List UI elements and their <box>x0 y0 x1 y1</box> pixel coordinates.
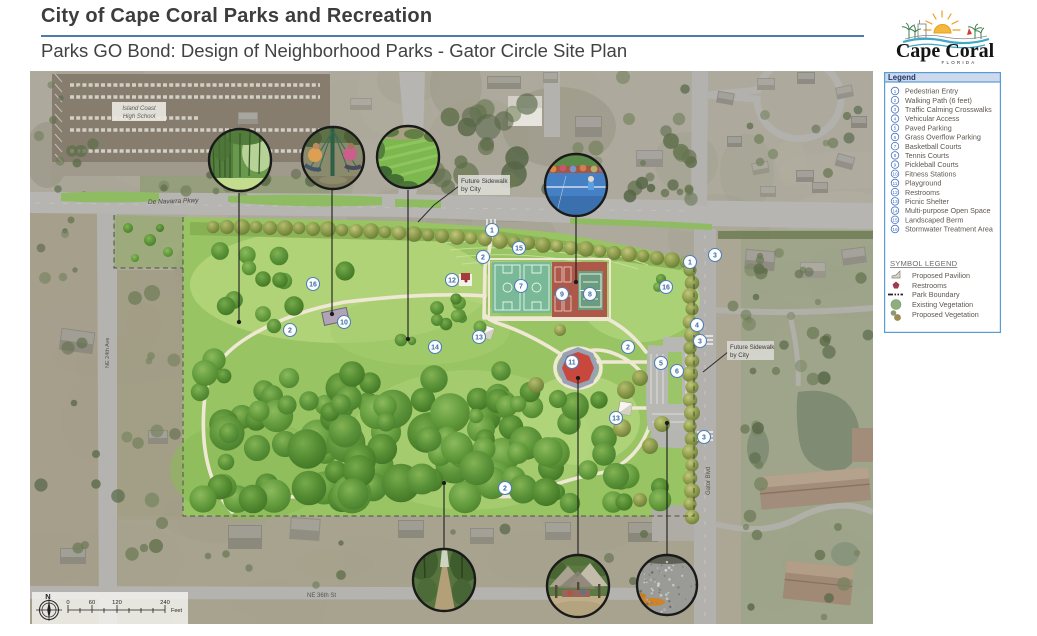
svg-text:14: 14 <box>892 208 898 214</box>
svg-text:9: 9 <box>560 291 564 298</box>
svg-text:Restrooms: Restrooms <box>905 188 940 197</box>
svg-text:Playground: Playground <box>905 179 941 188</box>
svg-text:7: 7 <box>894 144 897 150</box>
svg-text:Paved Parking: Paved Parking <box>905 123 952 132</box>
svg-text:Gator Blvd: Gator Blvd <box>706 467 712 495</box>
svg-text:16: 16 <box>662 284 670 291</box>
svg-text:SYMBOL LEGEND: SYMBOL LEGEND <box>890 259 958 268</box>
svg-text:3: 3 <box>894 107 897 113</box>
svg-text:3: 3 <box>713 252 717 259</box>
svg-text:13: 13 <box>475 334 483 341</box>
svg-text:Tennis Courts: Tennis Courts <box>905 151 949 160</box>
svg-text:5: 5 <box>894 126 897 132</box>
svg-text:8: 8 <box>588 291 592 298</box>
svg-text:1: 1 <box>490 227 494 234</box>
svg-text:Legend: Legend <box>888 73 916 82</box>
svg-text:16: 16 <box>892 227 898 233</box>
svg-text:15: 15 <box>892 218 898 224</box>
svg-text:14: 14 <box>431 344 439 351</box>
svg-text:2: 2 <box>894 98 897 104</box>
svg-text:12: 12 <box>448 277 456 284</box>
svg-text:Landscaped Berm: Landscaped Berm <box>905 215 963 224</box>
svg-text:2: 2 <box>481 254 485 261</box>
svg-text:NE 36th St: NE 36th St <box>307 593 336 599</box>
svg-text:Restrooms: Restrooms <box>912 281 947 290</box>
svg-text:Vehicular Access: Vehicular Access <box>905 114 960 123</box>
svg-text:10: 10 <box>340 319 348 326</box>
svg-text:Future Sidewalk: Future Sidewalk <box>461 178 508 185</box>
svg-text:3: 3 <box>702 434 706 441</box>
svg-text:Basketball Courts: Basketball Courts <box>905 142 962 151</box>
svg-text:Pickleball Courts: Pickleball Courts <box>905 160 959 169</box>
svg-text:10: 10 <box>892 172 898 178</box>
svg-text:Grass Overflow Parking: Grass Overflow Parking <box>905 133 981 142</box>
svg-text:Picnic Shelter: Picnic Shelter <box>905 197 950 206</box>
svg-text:Feet: Feet <box>171 608 182 614</box>
svg-text:Multi-purpose Open Space: Multi-purpose Open Space <box>905 206 991 215</box>
svg-text:N: N <box>45 592 50 601</box>
svg-text:by City: by City <box>461 186 482 193</box>
svg-text:12: 12 <box>892 190 898 196</box>
svg-text:15: 15 <box>515 245 523 252</box>
svg-text:2: 2 <box>503 485 507 492</box>
svg-text:13: 13 <box>612 415 620 422</box>
svg-text:5: 5 <box>659 360 663 367</box>
svg-text:60: 60 <box>89 600 95 606</box>
svg-text:11: 11 <box>568 359 576 366</box>
svg-text:2: 2 <box>288 327 292 334</box>
svg-text:Cape Coral: Cape Coral <box>896 40 995 62</box>
svg-text:FLORIDA: FLORIDA <box>942 60 977 65</box>
svg-text:Island Coast: Island Coast <box>122 106 156 112</box>
svg-text:3: 3 <box>698 338 702 345</box>
svg-text:Pedestrian Entry: Pedestrian Entry <box>905 87 959 96</box>
svg-text:Fitness Stations: Fitness Stations <box>905 169 957 178</box>
svg-text:1: 1 <box>688 259 692 266</box>
svg-text:6: 6 <box>675 368 679 375</box>
svg-text:Walking Path (6 feet): Walking Path (6 feet) <box>905 96 972 105</box>
svg-text:by City: by City <box>730 352 750 359</box>
svg-text:Future Sidewalk: Future Sidewalk <box>730 344 775 351</box>
svg-text:High School: High School <box>123 114 156 120</box>
svg-text:2: 2 <box>626 344 630 351</box>
svg-text:Park Boundary: Park Boundary <box>912 290 960 299</box>
svg-text:NE 24th Ave: NE 24th Ave <box>105 338 111 368</box>
svg-text:Proposed Pavilion: Proposed Pavilion <box>912 271 970 280</box>
svg-text:6: 6 <box>894 135 897 141</box>
svg-text:Proposed Vegetation: Proposed Vegetation <box>912 310 979 319</box>
svg-text:16: 16 <box>309 281 317 288</box>
svg-text:240: 240 <box>160 600 170 606</box>
svg-text:Existing Vegetation: Existing Vegetation <box>912 300 973 309</box>
svg-text:8: 8 <box>894 153 897 159</box>
svg-text:Traffic Calming Crosswalks: Traffic Calming Crosswalks <box>905 105 992 114</box>
svg-text:Stormwater Treatment Area: Stormwater Treatment Area <box>905 225 993 234</box>
svg-text:4: 4 <box>894 116 897 122</box>
svg-text:13: 13 <box>892 199 898 205</box>
svg-text:0: 0 <box>66 600 69 606</box>
svg-text:9: 9 <box>894 162 897 168</box>
svg-text:4: 4 <box>695 322 699 329</box>
svg-text:1: 1 <box>894 89 897 95</box>
svg-text:7: 7 <box>519 283 523 290</box>
svg-text:120: 120 <box>112 600 122 606</box>
svg-text:11: 11 <box>893 181 898 187</box>
